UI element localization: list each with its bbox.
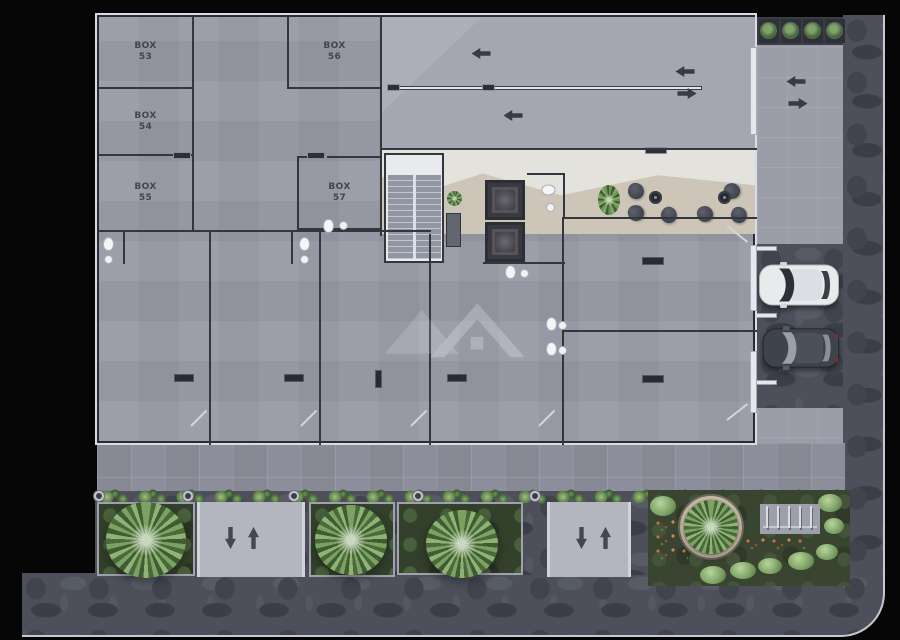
- lobby-table: [649, 191, 662, 204]
- bush: [824, 518, 844, 534]
- bollard: [94, 491, 104, 501]
- door-swing: [726, 403, 748, 421]
- rail-post: [387, 84, 400, 91]
- room-box-55: BOX 55: [99, 156, 192, 230]
- car-dark: [760, 326, 842, 370]
- floor-vent: [284, 374, 304, 382]
- box-55-number: 55: [139, 193, 152, 203]
- corner-garden: [648, 490, 850, 586]
- bollard: [183, 491, 193, 501]
- box-57-label: BOX: [328, 182, 350, 192]
- round-shrub: [804, 22, 821, 39]
- sink: [546, 203, 555, 212]
- floor-plan-stage: BOX 53 BOX 54 BOX 55 BOX 56 BOX 57: [0, 0, 900, 640]
- bush: [758, 558, 782, 574]
- wall: [562, 219, 564, 445]
- wall: [291, 232, 293, 264]
- floor-vent: [375, 370, 382, 388]
- garage-door-threshold: [750, 245, 757, 311]
- door-swing: [300, 410, 317, 427]
- floor-vent: [642, 375, 664, 383]
- arrow-left-icon: [503, 110, 523, 121]
- rail-post: [482, 84, 495, 91]
- arrow-down-icon: [225, 526, 236, 550]
- wall: [564, 330, 757, 332]
- elevator-1: [485, 180, 525, 220]
- wall: [287, 17, 289, 89]
- room-box-53: BOX 53: [99, 17, 192, 87]
- box-56-number: 56: [328, 52, 341, 62]
- door-swing: [190, 410, 207, 427]
- room-box-56: BOX 56: [289, 17, 380, 87]
- floor-vent: [447, 374, 467, 382]
- sink: [520, 269, 529, 278]
- bush: [650, 496, 676, 516]
- door-swing: [410, 410, 427, 427]
- toilet: [103, 237, 114, 251]
- bush: [730, 562, 756, 579]
- round-shrub: [826, 22, 843, 39]
- watermark-logo: [378, 286, 538, 366]
- sidewalk-band: [97, 443, 845, 493]
- bush: [816, 544, 838, 560]
- garage-door-threshold: [750, 351, 757, 413]
- toilet: [505, 265, 516, 279]
- building-footprint: BOX 53 BOX 54 BOX 55 BOX 56 BOX 57: [97, 15, 755, 443]
- street-ramp-1: [197, 502, 305, 577]
- arrow-up-icon: [600, 526, 611, 550]
- bush: [788, 552, 814, 570]
- bollard: [413, 491, 423, 501]
- arrow-up-icon: [248, 526, 259, 550]
- shaft-closet: [446, 213, 461, 247]
- street-ramp-2: [547, 502, 631, 577]
- arrow-left-icon: [675, 66, 695, 77]
- flower-bed: [742, 536, 806, 550]
- box-56-label: BOX: [323, 41, 345, 51]
- potted-plant: [447, 191, 462, 206]
- toilet: [323, 219, 334, 233]
- bollard: [530, 491, 540, 501]
- bike-rack-post: [788, 506, 790, 528]
- wall: [99, 230, 431, 232]
- room-box-54: BOX 54: [99, 89, 192, 154]
- toilet: [299, 237, 310, 251]
- wall: [562, 217, 757, 219]
- parking-divider: [755, 246, 777, 251]
- bike-rack-post: [799, 506, 801, 528]
- wall: [380, 17, 382, 236]
- sink: [339, 221, 348, 230]
- box-53-label: BOX: [134, 41, 156, 51]
- sink: [104, 255, 113, 264]
- room-box-57: BOX 57: [299, 158, 380, 228]
- garage-entry-threshold: [750, 47, 757, 135]
- bush: [818, 494, 842, 512]
- lobby-plant: [598, 185, 620, 215]
- bush: [700, 566, 726, 584]
- wall: [297, 156, 299, 230]
- bike-rack-post: [777, 506, 779, 528]
- wall: [209, 230, 211, 445]
- box-54-label: BOX: [134, 111, 156, 121]
- bike-rack-post: [766, 506, 768, 528]
- elevator-car: [495, 190, 515, 210]
- toilet: [546, 342, 557, 356]
- palm-tree: [684, 500, 738, 554]
- stair-divider: [413, 175, 416, 259]
- bike-rack-post: [810, 506, 812, 528]
- ramp-rail: [387, 86, 702, 90]
- box-54-number: 54: [139, 122, 152, 132]
- sink: [300, 255, 309, 264]
- wall: [563, 173, 565, 219]
- palm-tree: [315, 505, 387, 575]
- arrow-right-icon: [788, 98, 808, 109]
- palm-tree: [106, 502, 186, 578]
- parking-divider: [755, 380, 777, 385]
- arrow-right-icon: [677, 88, 697, 99]
- bike-rack-rail: [763, 526, 817, 528]
- toilet: [542, 185, 556, 196]
- door-swing: [538, 410, 555, 427]
- bollard: [289, 491, 299, 501]
- wall: [319, 230, 321, 445]
- stair-flight: [388, 175, 413, 259]
- car-white: [758, 262, 840, 308]
- toilet: [546, 317, 557, 331]
- box-53-number: 53: [139, 52, 152, 62]
- parking-divider: [755, 313, 777, 318]
- palm-tree: [426, 510, 498, 578]
- arrow-left-icon: [786, 76, 806, 87]
- box-57-number: 57: [333, 193, 346, 203]
- wall: [483, 262, 565, 264]
- elevator-2: [485, 222, 525, 262]
- arrow-down-icon: [576, 526, 587, 550]
- lobby-table: [718, 191, 731, 204]
- wall: [123, 232, 125, 264]
- wall: [192, 17, 194, 230]
- box-55-label: BOX: [134, 182, 156, 192]
- round-shrub: [782, 22, 799, 39]
- door-handle: [173, 152, 191, 159]
- wall: [382, 148, 757, 150]
- sink: [558, 346, 567, 355]
- arrow-left-icon: [471, 48, 491, 59]
- floor-vent: [174, 374, 194, 382]
- round-shrub: [760, 22, 777, 39]
- wall: [527, 173, 565, 175]
- elevator-car: [495, 232, 515, 252]
- stairwell: [384, 153, 444, 263]
- door-handle: [307, 152, 325, 159]
- floor-vent: [642, 257, 664, 265]
- sink: [558, 321, 567, 330]
- wall: [327, 156, 382, 158]
- wall: [99, 87, 192, 89]
- wall: [287, 87, 382, 89]
